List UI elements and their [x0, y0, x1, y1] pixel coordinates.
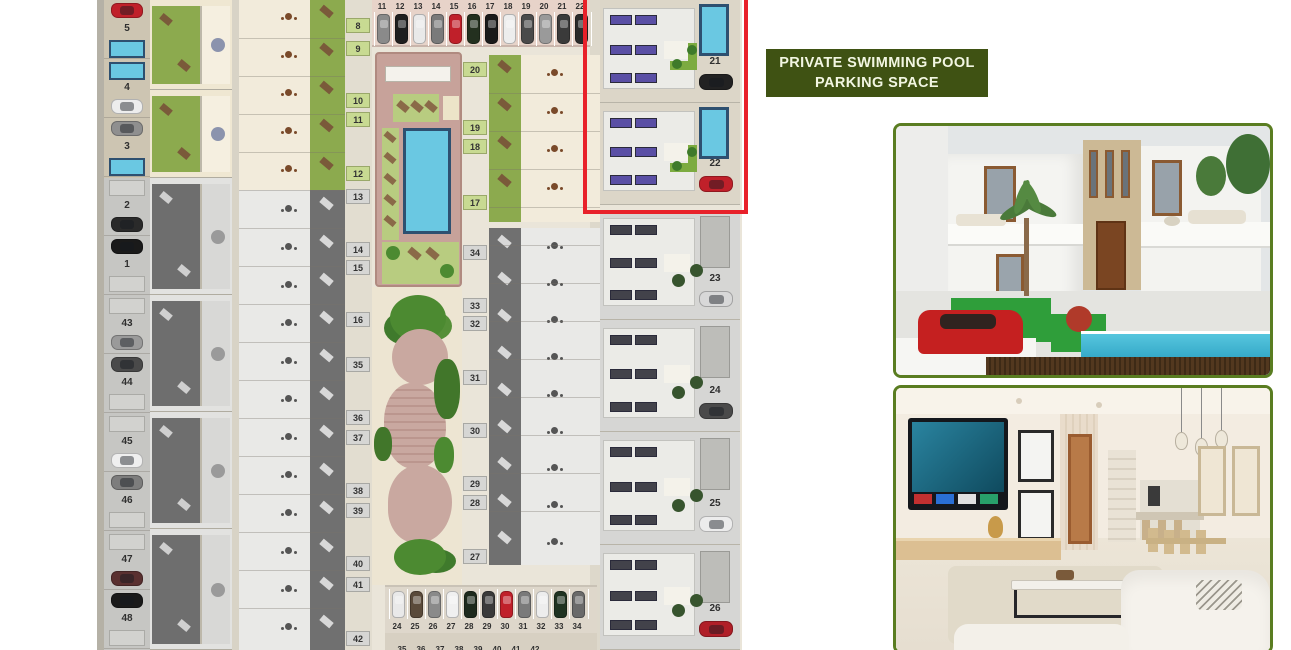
- car-glass: [575, 596, 583, 604]
- tree: [1226, 134, 1270, 194]
- car-glass: [120, 242, 134, 251]
- parking-number: 14: [427, 0, 445, 13]
- solar-panel: [635, 335, 657, 345]
- plot-tab: 37: [346, 430, 370, 445]
- lounger-icon: [319, 119, 333, 133]
- plot-number: 43: [104, 317, 150, 330]
- car-glass: [578, 20, 586, 28]
- tree-icon: [687, 45, 697, 55]
- plot-cell-left: 43: [104, 295, 150, 354]
- dining-set-icon: [551, 145, 558, 152]
- pendant-cord: [1201, 388, 1202, 440]
- unit-divider: [489, 473, 600, 474]
- car-glass: [380, 20, 388, 28]
- solar-panel: [635, 15, 657, 25]
- sofa: [954, 624, 1129, 650]
- car-glass: [120, 6, 134, 15]
- villa-house: [603, 553, 695, 636]
- parking-pad: [109, 394, 145, 410]
- deck-chair-icon: [177, 498, 191, 511]
- plot-tab: 18: [463, 139, 487, 154]
- tv-app-tile: [980, 494, 998, 504]
- stall-line: [407, 589, 408, 619]
- parking-pad: [109, 180, 145, 196]
- car-glass: [431, 596, 439, 604]
- dining-set-icon: [285, 509, 292, 516]
- tree-icon: [672, 386, 685, 399]
- deck-chair-icon: [177, 59, 191, 72]
- lounger-icon: [497, 531, 511, 545]
- car-glass: [120, 478, 134, 487]
- car-glass: [120, 124, 134, 133]
- plot-tab: 17: [463, 195, 487, 210]
- lounger-icon: [319, 273, 333, 287]
- kitchen-counter: [1136, 512, 1204, 520]
- tree-cluster: [394, 539, 446, 575]
- car-icon: [554, 591, 567, 618]
- parking-number: 30: [496, 620, 514, 633]
- stall-line: [515, 589, 516, 619]
- plot-number: 44: [104, 376, 150, 389]
- tree-icon: [672, 161, 682, 171]
- unit-divider: [239, 76, 345, 77]
- dining-set-icon: [285, 165, 292, 172]
- plot-cell-left: 3: [104, 118, 150, 177]
- car-glass: [467, 596, 475, 604]
- plot-tab: 32: [463, 316, 487, 331]
- car-icon: [111, 593, 143, 608]
- stall-line: [392, 12, 393, 46]
- lounger-icon: [497, 383, 511, 397]
- unit-divider: [239, 152, 345, 153]
- dining-set-icon: [551, 538, 558, 545]
- tree-icon: [211, 38, 225, 52]
- lounger-icon: [319, 43, 333, 57]
- parking-number: 25: [406, 620, 424, 633]
- solar-panel: [635, 369, 657, 379]
- deck-chair-icon: [159, 103, 173, 116]
- fence: [986, 357, 1270, 375]
- solar-panel: [610, 45, 632, 55]
- plot-tab: 28: [463, 495, 487, 510]
- deck-chair-icon: [159, 542, 173, 555]
- roof-terrace-parapet: [1141, 222, 1270, 248]
- plot-cell-left: 47: [104, 531, 150, 590]
- car-icon: [699, 516, 733, 532]
- plot-cell-left: 2: [104, 177, 150, 236]
- car-icon: [464, 591, 477, 618]
- stall-line: [500, 12, 501, 46]
- plot-tab: 41: [346, 577, 370, 592]
- car-icon: [377, 14, 390, 44]
- plot-tab: 12: [346, 166, 370, 181]
- unit-divider: [489, 93, 600, 94]
- car-glass: [120, 574, 134, 583]
- solar-panel: [635, 620, 657, 630]
- parking-number: 29: [478, 620, 496, 633]
- solar-panel: [635, 482, 657, 492]
- stall-line: [446, 12, 447, 46]
- parking-number: 35: [393, 643, 411, 650]
- tree-icon: [440, 264, 454, 278]
- parking-number: 16: [463, 0, 481, 13]
- parking-number: 13: [409, 0, 427, 13]
- villa-plot: 22: [600, 103, 740, 205]
- lounger-icon: [319, 539, 333, 553]
- car-glass: [488, 20, 496, 28]
- garden-strip: [310, 0, 345, 190]
- car-icon: [111, 239, 143, 254]
- stairs: [1108, 450, 1136, 542]
- deck-chair-icon: [159, 425, 173, 438]
- dining-set-icon: [285, 51, 292, 58]
- plot-number: 21: [698, 55, 732, 68]
- house-front: [200, 6, 230, 84]
- spotlight: [1016, 398, 1022, 404]
- rowhouses-west-colored: [239, 0, 345, 190]
- dining-set-icon: [551, 390, 558, 397]
- garage-pad: [700, 216, 730, 268]
- car-icon: [395, 14, 408, 44]
- plot-number: 1: [104, 258, 150, 271]
- unit-divider: [239, 456, 345, 457]
- plot-tab: 27: [463, 549, 487, 564]
- solar-panel: [635, 45, 657, 55]
- tree-icon: [211, 127, 225, 141]
- car-icon: [428, 591, 441, 618]
- parking-number: 38: [450, 643, 468, 650]
- parking-number: 18: [499, 0, 517, 13]
- lounger-icon: [424, 100, 438, 113]
- lounger-icon: [319, 235, 333, 249]
- plot-cell-left: 45: [104, 413, 150, 472]
- unit-divider: [489, 131, 600, 132]
- parking-number: 39: [469, 643, 487, 650]
- pendant-lamp: [1175, 432, 1188, 450]
- lounger-icon: [407, 247, 421, 261]
- tree-icon: [386, 246, 400, 260]
- lounger-icon: [319, 197, 333, 211]
- car-glass: [452, 20, 460, 28]
- oven: [1148, 486, 1160, 506]
- car-icon: [449, 14, 462, 44]
- parking-number: 26: [424, 620, 442, 633]
- lawn: [393, 94, 439, 122]
- deck-chair-icon: [159, 191, 173, 204]
- car-icon: [539, 14, 552, 44]
- parking-pad: [109, 298, 145, 314]
- unit-divider: [239, 190, 345, 191]
- lounger-icon: [425, 247, 439, 261]
- parking-pad: [109, 534, 145, 550]
- slit-window: [1089, 150, 1098, 198]
- lounger-icon: [319, 81, 333, 95]
- striped-pillow: [1196, 580, 1242, 610]
- lounger-icon: [319, 387, 333, 401]
- solar-panel: [610, 620, 632, 630]
- plot-tab: 40: [346, 556, 370, 571]
- lawn: [382, 242, 459, 284]
- parking-number: 15: [445, 0, 463, 13]
- private-pool: [699, 4, 729, 56]
- garden: [152, 6, 200, 84]
- bottom-parking-row: 24252627282930313233343536373839404142: [385, 585, 597, 650]
- plot-number: 22: [698, 157, 732, 170]
- stall-line: [588, 589, 589, 619]
- tree-icon: [672, 604, 685, 617]
- garage-pad: [700, 326, 730, 378]
- lounger-icon: [497, 420, 511, 434]
- parking-number: 40: [488, 643, 506, 650]
- spotlight: [1096, 402, 1102, 408]
- stall-line: [533, 589, 534, 619]
- swimming-pool: [403, 128, 451, 234]
- dining-set-icon: [551, 69, 558, 76]
- car-icon: [446, 591, 459, 618]
- tree-icon: [672, 274, 685, 287]
- plot-number: 24: [698, 384, 732, 397]
- stall-line: [425, 589, 426, 619]
- car-glass: [521, 596, 529, 604]
- car-icon: [503, 14, 516, 44]
- house-front: [200, 535, 230, 644]
- framed-art: [1018, 490, 1054, 540]
- lounger-icon: [319, 577, 333, 591]
- car-glass: [398, 20, 406, 28]
- terrace: [664, 587, 690, 605]
- solar-panel: [610, 447, 632, 457]
- solar-panel: [610, 175, 632, 185]
- patio-door: [1068, 434, 1092, 544]
- tv-app-tile: [936, 494, 954, 504]
- deck-chair-icon: [177, 147, 191, 160]
- tree-cluster: [434, 359, 460, 419]
- solar-panel: [635, 73, 657, 83]
- parking-number: 19: [517, 0, 535, 13]
- car-icon: [111, 475, 143, 490]
- plot-number: 5: [104, 22, 150, 35]
- palm-trunk: [1024, 218, 1029, 296]
- dining-set-icon: [285, 433, 292, 440]
- dining-set-icon: [551, 501, 558, 508]
- stall-line: [461, 589, 462, 619]
- private-pool: [699, 107, 729, 159]
- car-icon: [111, 3, 143, 18]
- pendant-cord: [1181, 388, 1182, 434]
- rowhouses-east: [489, 55, 600, 565]
- solar-panel: [610, 591, 632, 601]
- unit-divider: [239, 266, 345, 267]
- rowhouses-east-colored: [489, 55, 600, 222]
- solar-panel: [635, 515, 657, 525]
- framed-art: [1232, 446, 1260, 516]
- lounger-icon: [383, 131, 396, 143]
- lounger-icon: [497, 346, 511, 360]
- framed-art: [1198, 446, 1226, 516]
- garage-pad: [700, 551, 730, 603]
- car-glass: [539, 596, 547, 604]
- tv-screen: [912, 422, 1004, 492]
- car-icon: [413, 14, 426, 44]
- solar-panel: [635, 225, 657, 235]
- pool-icon: [109, 158, 145, 176]
- second-parking-row: 3536373839404142: [385, 633, 597, 650]
- dining-set-icon: [285, 357, 292, 364]
- shrub: [1066, 306, 1092, 332]
- car-icon: [500, 591, 513, 618]
- unit-divider: [489, 321, 600, 322]
- lounger-icon: [319, 615, 333, 629]
- solar-panel: [635, 175, 657, 185]
- car-glass: [120, 338, 134, 347]
- parking-number: 24: [388, 620, 406, 633]
- car-glass: [709, 520, 724, 529]
- lounger-icon: [383, 152, 396, 164]
- plot-number: 4: [104, 81, 150, 94]
- solar-panel: [610, 147, 632, 157]
- dining-set-icon: [285, 13, 292, 20]
- stall-line: [572, 12, 573, 46]
- solar-panel: [610, 482, 632, 492]
- parking-number: 22: [571, 0, 589, 13]
- pool-icon: [109, 40, 145, 58]
- lounger-icon: [319, 157, 333, 171]
- stall-line: [479, 589, 480, 619]
- tv-app-tile: [958, 494, 976, 504]
- parking-pad: [109, 630, 145, 646]
- unit-divider: [239, 38, 345, 39]
- stall-line: [374, 12, 375, 46]
- car-glass: [485, 596, 493, 604]
- neighbor-wall: [896, 126, 948, 316]
- parking-number: 28: [460, 620, 478, 633]
- top-parking-row: 111213141516171819202122: [372, 0, 590, 47]
- lounger-icon: [497, 60, 511, 74]
- deck-chair-icon: [177, 264, 191, 277]
- deck-chair-icon: [159, 13, 173, 26]
- tree-icon: [211, 347, 225, 361]
- car-icon: [699, 403, 733, 419]
- parking-pad: [109, 512, 145, 528]
- car-glass: [120, 456, 134, 465]
- parking-number: 11: [373, 0, 391, 13]
- plot-cell-left: 48: [104, 590, 150, 649]
- stall-line: [410, 12, 411, 46]
- unit-divider: [489, 435, 600, 436]
- car-glass: [416, 20, 424, 28]
- car-glass: [395, 596, 403, 604]
- path-blob: [388, 465, 452, 543]
- villa-house: [603, 111, 695, 191]
- car-glass: [940, 314, 996, 329]
- solar-panel: [635, 118, 657, 128]
- balcony-sofa: [956, 214, 1006, 226]
- house-block-west: [150, 529, 232, 650]
- plot-cell-left: 5: [104, 0, 150, 59]
- car-glass: [709, 295, 724, 304]
- solar-panel: [610, 118, 632, 128]
- bush: [374, 427, 392, 461]
- framed-art: [1018, 430, 1054, 482]
- house-front: [200, 184, 230, 289]
- dining-set-icon: [285, 281, 292, 288]
- pendant-cord: [1221, 388, 1222, 432]
- lounger-icon: [497, 98, 511, 112]
- dining-set-icon: [285, 319, 292, 326]
- plot-number: 26: [698, 602, 732, 615]
- car-glass: [120, 102, 134, 111]
- house-front: [200, 301, 230, 406]
- lounger-icon: [497, 457, 511, 471]
- dining-set-icon: [551, 107, 558, 114]
- plot-number: 48: [104, 612, 150, 625]
- unit-divider: [239, 228, 345, 229]
- parking-number: 12: [391, 0, 409, 13]
- dining-set-icon: [551, 427, 558, 434]
- sofa: [1121, 570, 1270, 650]
- lounger-icon: [319, 349, 333, 363]
- garden: [152, 418, 200, 523]
- photo-living-room-interior: [893, 385, 1273, 650]
- annotation-line-2: PARKING SPACE: [815, 73, 939, 93]
- solar-panel: [610, 515, 632, 525]
- boundary-wall: [97, 0, 104, 650]
- villa-plot: 25: [600, 432, 740, 545]
- car-icon: [111, 335, 143, 350]
- car-icon: [467, 14, 480, 44]
- unit-divider: [239, 380, 345, 381]
- car-glass: [709, 625, 724, 634]
- unit-divider: [239, 494, 345, 495]
- dining-set-icon: [285, 471, 292, 478]
- front-door: [1096, 221, 1126, 290]
- site-plan: 5432143444546474889101112131415163536373…: [97, 0, 742, 650]
- parking-number: 34: [568, 620, 586, 633]
- car-icon: [572, 591, 585, 618]
- plot-tab: 33: [463, 298, 487, 313]
- stall-line: [482, 12, 483, 46]
- car-glass: [524, 20, 532, 28]
- terrace-sofa: [1188, 210, 1246, 224]
- stall-line: [569, 589, 570, 619]
- deck-chair-icon: [177, 381, 191, 394]
- pool-icon: [109, 62, 145, 80]
- stall-line: [428, 12, 429, 46]
- solar-panel: [610, 560, 632, 570]
- car-glass: [542, 20, 550, 28]
- car-glass: [434, 20, 442, 28]
- villa-plot: 26: [600, 545, 740, 650]
- tree-icon: [687, 147, 697, 157]
- dining-set-icon: [285, 547, 292, 554]
- car-glass: [709, 407, 724, 416]
- plot-number: 45: [104, 435, 150, 448]
- villa-plot: 23: [600, 210, 740, 320]
- stall-line: [554, 12, 555, 46]
- parking-number: 42: [526, 643, 544, 650]
- tv-app-tile: [914, 494, 932, 504]
- car-icon: [111, 217, 143, 232]
- plot-cell-left: 46: [104, 472, 150, 531]
- car-icon: [485, 14, 498, 44]
- dining-set-icon: [285, 127, 292, 134]
- unit-divider: [489, 283, 600, 284]
- car-icon: [699, 621, 733, 637]
- car-icon: [111, 99, 143, 114]
- solar-panel: [610, 73, 632, 83]
- dining-set-icon: [285, 89, 292, 96]
- car-icon: [557, 14, 570, 44]
